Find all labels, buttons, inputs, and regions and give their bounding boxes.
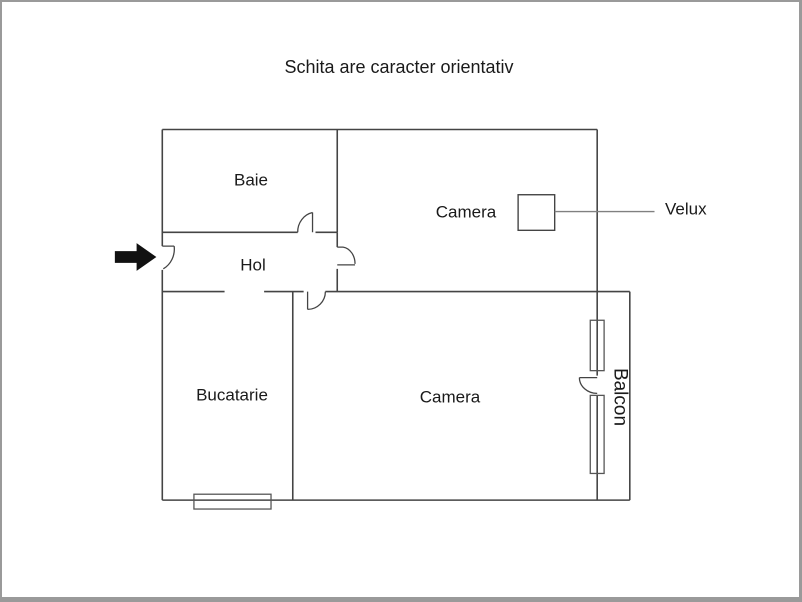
room-label-camera-top: Camera	[436, 204, 496, 223]
windows	[194, 320, 604, 509]
page-frame: Schita are caracter orientativ Baie Came…	[0, 0, 802, 602]
entrance-door-swing	[162, 246, 174, 269]
hol-lower-camera-door-swing	[308, 292, 326, 310]
room-label-baie: Baie	[234, 172, 268, 191]
entrance-arrow-icon	[115, 243, 157, 271]
room-label-bucatarie: Bucatarie	[196, 387, 268, 406]
balcony-door-swing	[579, 378, 597, 394]
bucatarie-window	[194, 494, 271, 509]
hol-camera-door-swing	[337, 247, 355, 265]
walls	[162, 130, 630, 501]
floor-plan-drawing	[2, 2, 799, 597]
doors	[162, 213, 597, 394]
room-label-camera-bottom: Camera	[420, 389, 480, 408]
baie-door-swing	[298, 213, 313, 233]
room-label-balcon: Balcon	[609, 368, 630, 426]
annotation-label-velux: Velux	[665, 201, 707, 220]
plan-title: Schita are caracter orientativ	[284, 58, 513, 78]
room-label-hol: Hol	[240, 257, 266, 276]
velux-marker	[518, 195, 555, 231]
